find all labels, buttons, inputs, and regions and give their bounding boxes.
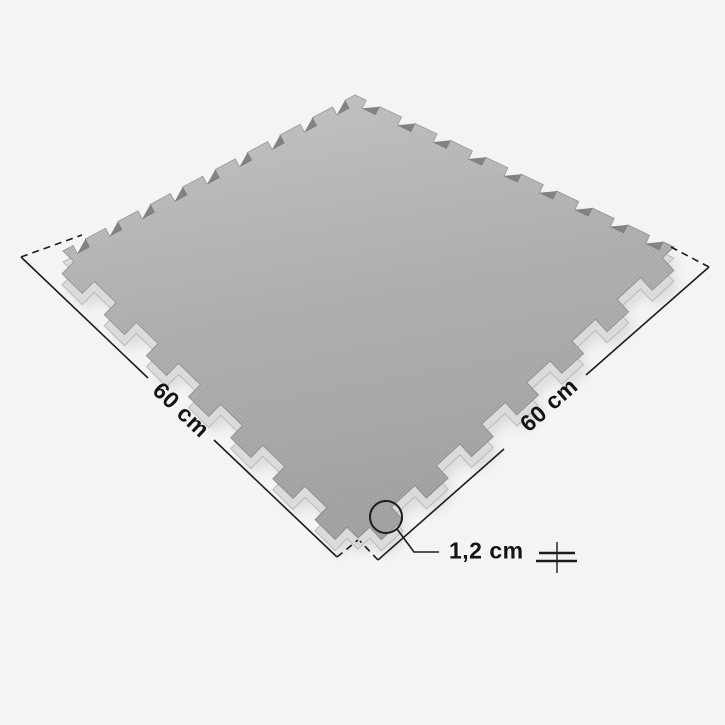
dimension-label-thickness: 1,2 cm xyxy=(449,538,524,565)
product-dimension-diagram: 60 cm 60 cm 1,2 cm xyxy=(0,0,725,725)
foam-mat-illustration xyxy=(0,0,725,725)
